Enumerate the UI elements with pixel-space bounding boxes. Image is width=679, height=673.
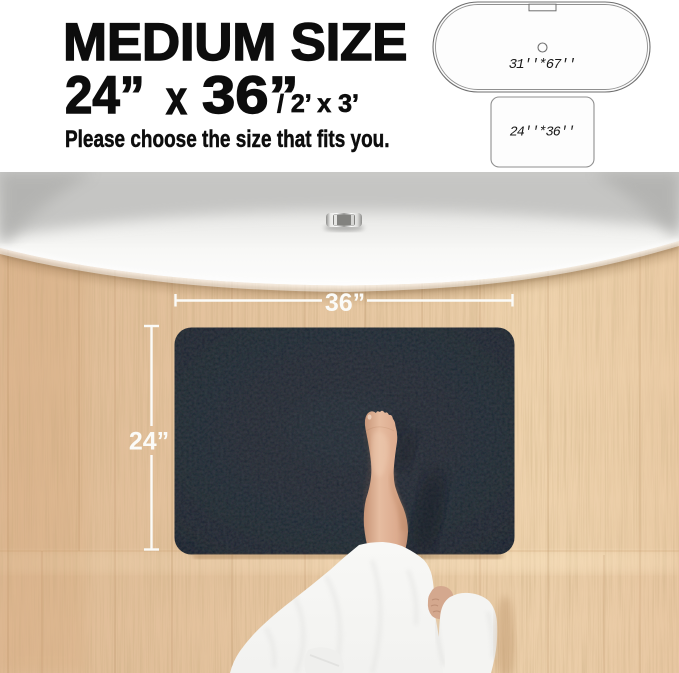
svg-text:36”: 36” [325,289,365,317]
svg-text:24”: 24” [129,428,169,456]
svg-text:24''*36'': 24''*36'' [510,126,575,141]
svg-text:31''*67'': 31''*67'' [509,57,576,73]
